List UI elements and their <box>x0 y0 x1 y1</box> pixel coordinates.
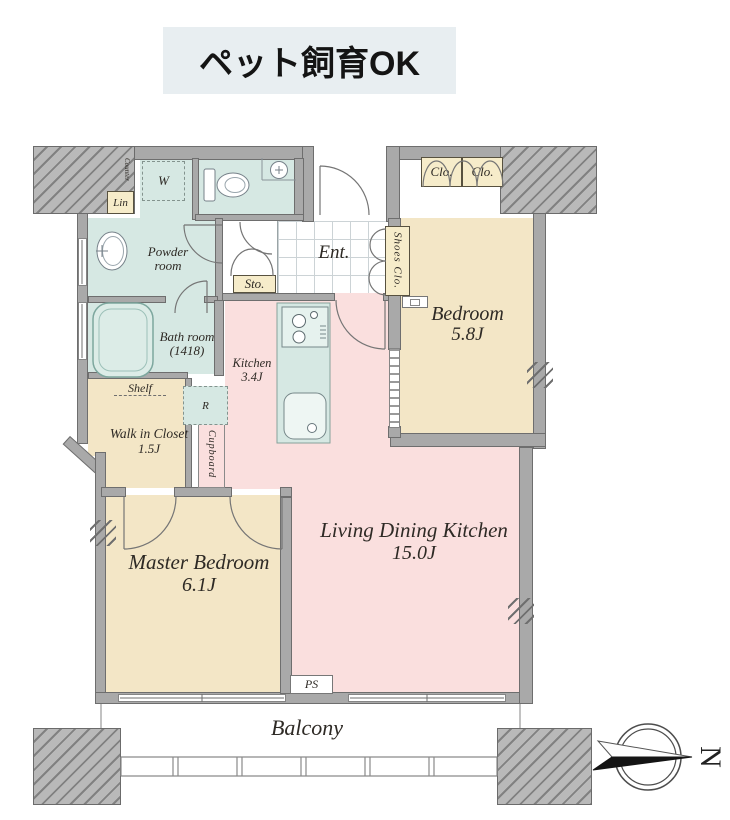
wall <box>88 296 166 303</box>
compass-outer-ring <box>615 724 681 790</box>
wall <box>222 293 335 301</box>
compass-inner-ring <box>620 729 676 785</box>
wall <box>174 487 232 497</box>
pillar-bottom-right <box>497 728 592 805</box>
powder-room-window <box>78 238 87 286</box>
wall <box>280 487 292 497</box>
wall <box>390 433 546 447</box>
compass-needle-outline <box>598 741 692 757</box>
linen-closet: Lin <box>107 191 134 214</box>
master-bedroom-size: 6.1J <box>116 574 282 596</box>
room-label-kitchen: Kitchen 3.4J <box>224 357 280 385</box>
pipe-space-label: PS <box>305 677 318 692</box>
linen-label: Lin <box>113 197 128 209</box>
refrigerator: R <box>183 386 228 425</box>
pillar-top-right <box>500 146 597 214</box>
room-label-powder: Powder room <box>139 245 197 274</box>
wall <box>215 218 223 304</box>
closet-left-label: Clo. <box>430 164 452 180</box>
master-bedroom-name: Master Bedroom <box>116 551 282 574</box>
ldk-floor <box>290 447 520 692</box>
entrance-door <box>320 166 369 215</box>
shelf-label: Shelf <box>114 382 166 396</box>
walk-in-closet-size: 1.5J <box>108 442 190 456</box>
wall <box>101 487 126 497</box>
wall-break-mark <box>508 598 534 624</box>
ldk-name: Living Dining Kitchen <box>310 519 518 542</box>
bedroom-sliding-door <box>389 348 400 428</box>
refrigerator-label: R <box>202 400 209 412</box>
wall <box>519 447 533 704</box>
wall <box>294 158 304 220</box>
wall <box>88 372 188 379</box>
ldk-floor-corner <box>225 447 290 489</box>
pillar-bottom-left <box>33 728 121 805</box>
kitchen-name: Kitchen <box>224 357 280 371</box>
railing-rails <box>121 757 497 776</box>
bedroom-name: Bedroom <box>400 303 535 325</box>
compass-needle-black <box>593 757 692 770</box>
compass-north-label: N <box>691 742 727 772</box>
bath-room-window <box>78 302 87 360</box>
bedroom-size: 5.8J <box>400 325 535 346</box>
room-label-bath: Bath room (1418) <box>155 330 219 359</box>
closet-left: Clo. <box>421 157 462 187</box>
room-label-balcony: Balcony <box>232 716 382 740</box>
floor-plan: Lin Sto. Clo. Clo. Shoes Clo. Cupboard W… <box>0 0 730 820</box>
cupboard: Cupboard <box>198 420 225 488</box>
washing-machine: W <box>142 161 185 201</box>
wall <box>195 214 304 221</box>
ldk-size: 15.0J <box>310 542 518 564</box>
room-label-entrance: Ent. <box>298 243 370 264</box>
storage-double-door <box>231 249 273 276</box>
wall-break-mark <box>90 520 116 546</box>
shoes-closet: Shoes Clo. <box>385 226 410 296</box>
cupboard-label: Cupboard <box>206 430 217 478</box>
railing-posts <box>121 757 497 776</box>
wall <box>386 146 400 222</box>
room-label-walk-in-closet: Walk in Closet 1.5J <box>108 427 190 456</box>
room-label-bedroom: Bedroom 5.8J <box>400 303 535 346</box>
floorplan-page: { "banner": { "text": "ペット飼育OK" }, "room… <box>0 0 730 820</box>
kitchen-size: 3.4J <box>224 371 280 385</box>
ldk-balcony-window <box>348 694 506 702</box>
wall <box>192 158 199 220</box>
compass-icon <box>593 724 692 790</box>
bath-dimensions: (1418) <box>155 344 219 358</box>
storage-label: Sto. <box>245 276 265 292</box>
wall-break-mark <box>527 362 553 388</box>
shoes-closet-label: Shoes Clo. <box>392 232 404 289</box>
washing-machine-label: W <box>158 173 169 189</box>
closet-right-label: Clo. <box>471 164 493 180</box>
bath-name: Bath room <box>155 330 219 344</box>
room-label-master-bedroom: Master Bedroom 6.1J <box>116 551 282 596</box>
master-bedroom-window <box>118 694 286 702</box>
walk-in-closet-name: Walk in Closet <box>108 427 190 442</box>
toilet-door <box>240 222 272 254</box>
closet-right: Clo. <box>462 157 503 187</box>
walk-in-closet-floor <box>105 456 185 488</box>
storage-closet: Sto. <box>233 275 276 293</box>
pipe-space: PS <box>290 675 333 694</box>
counter-label: Counter <box>116 149 130 189</box>
room-label-ldk: Living Dining Kitchen 15.0J <box>310 519 518 564</box>
